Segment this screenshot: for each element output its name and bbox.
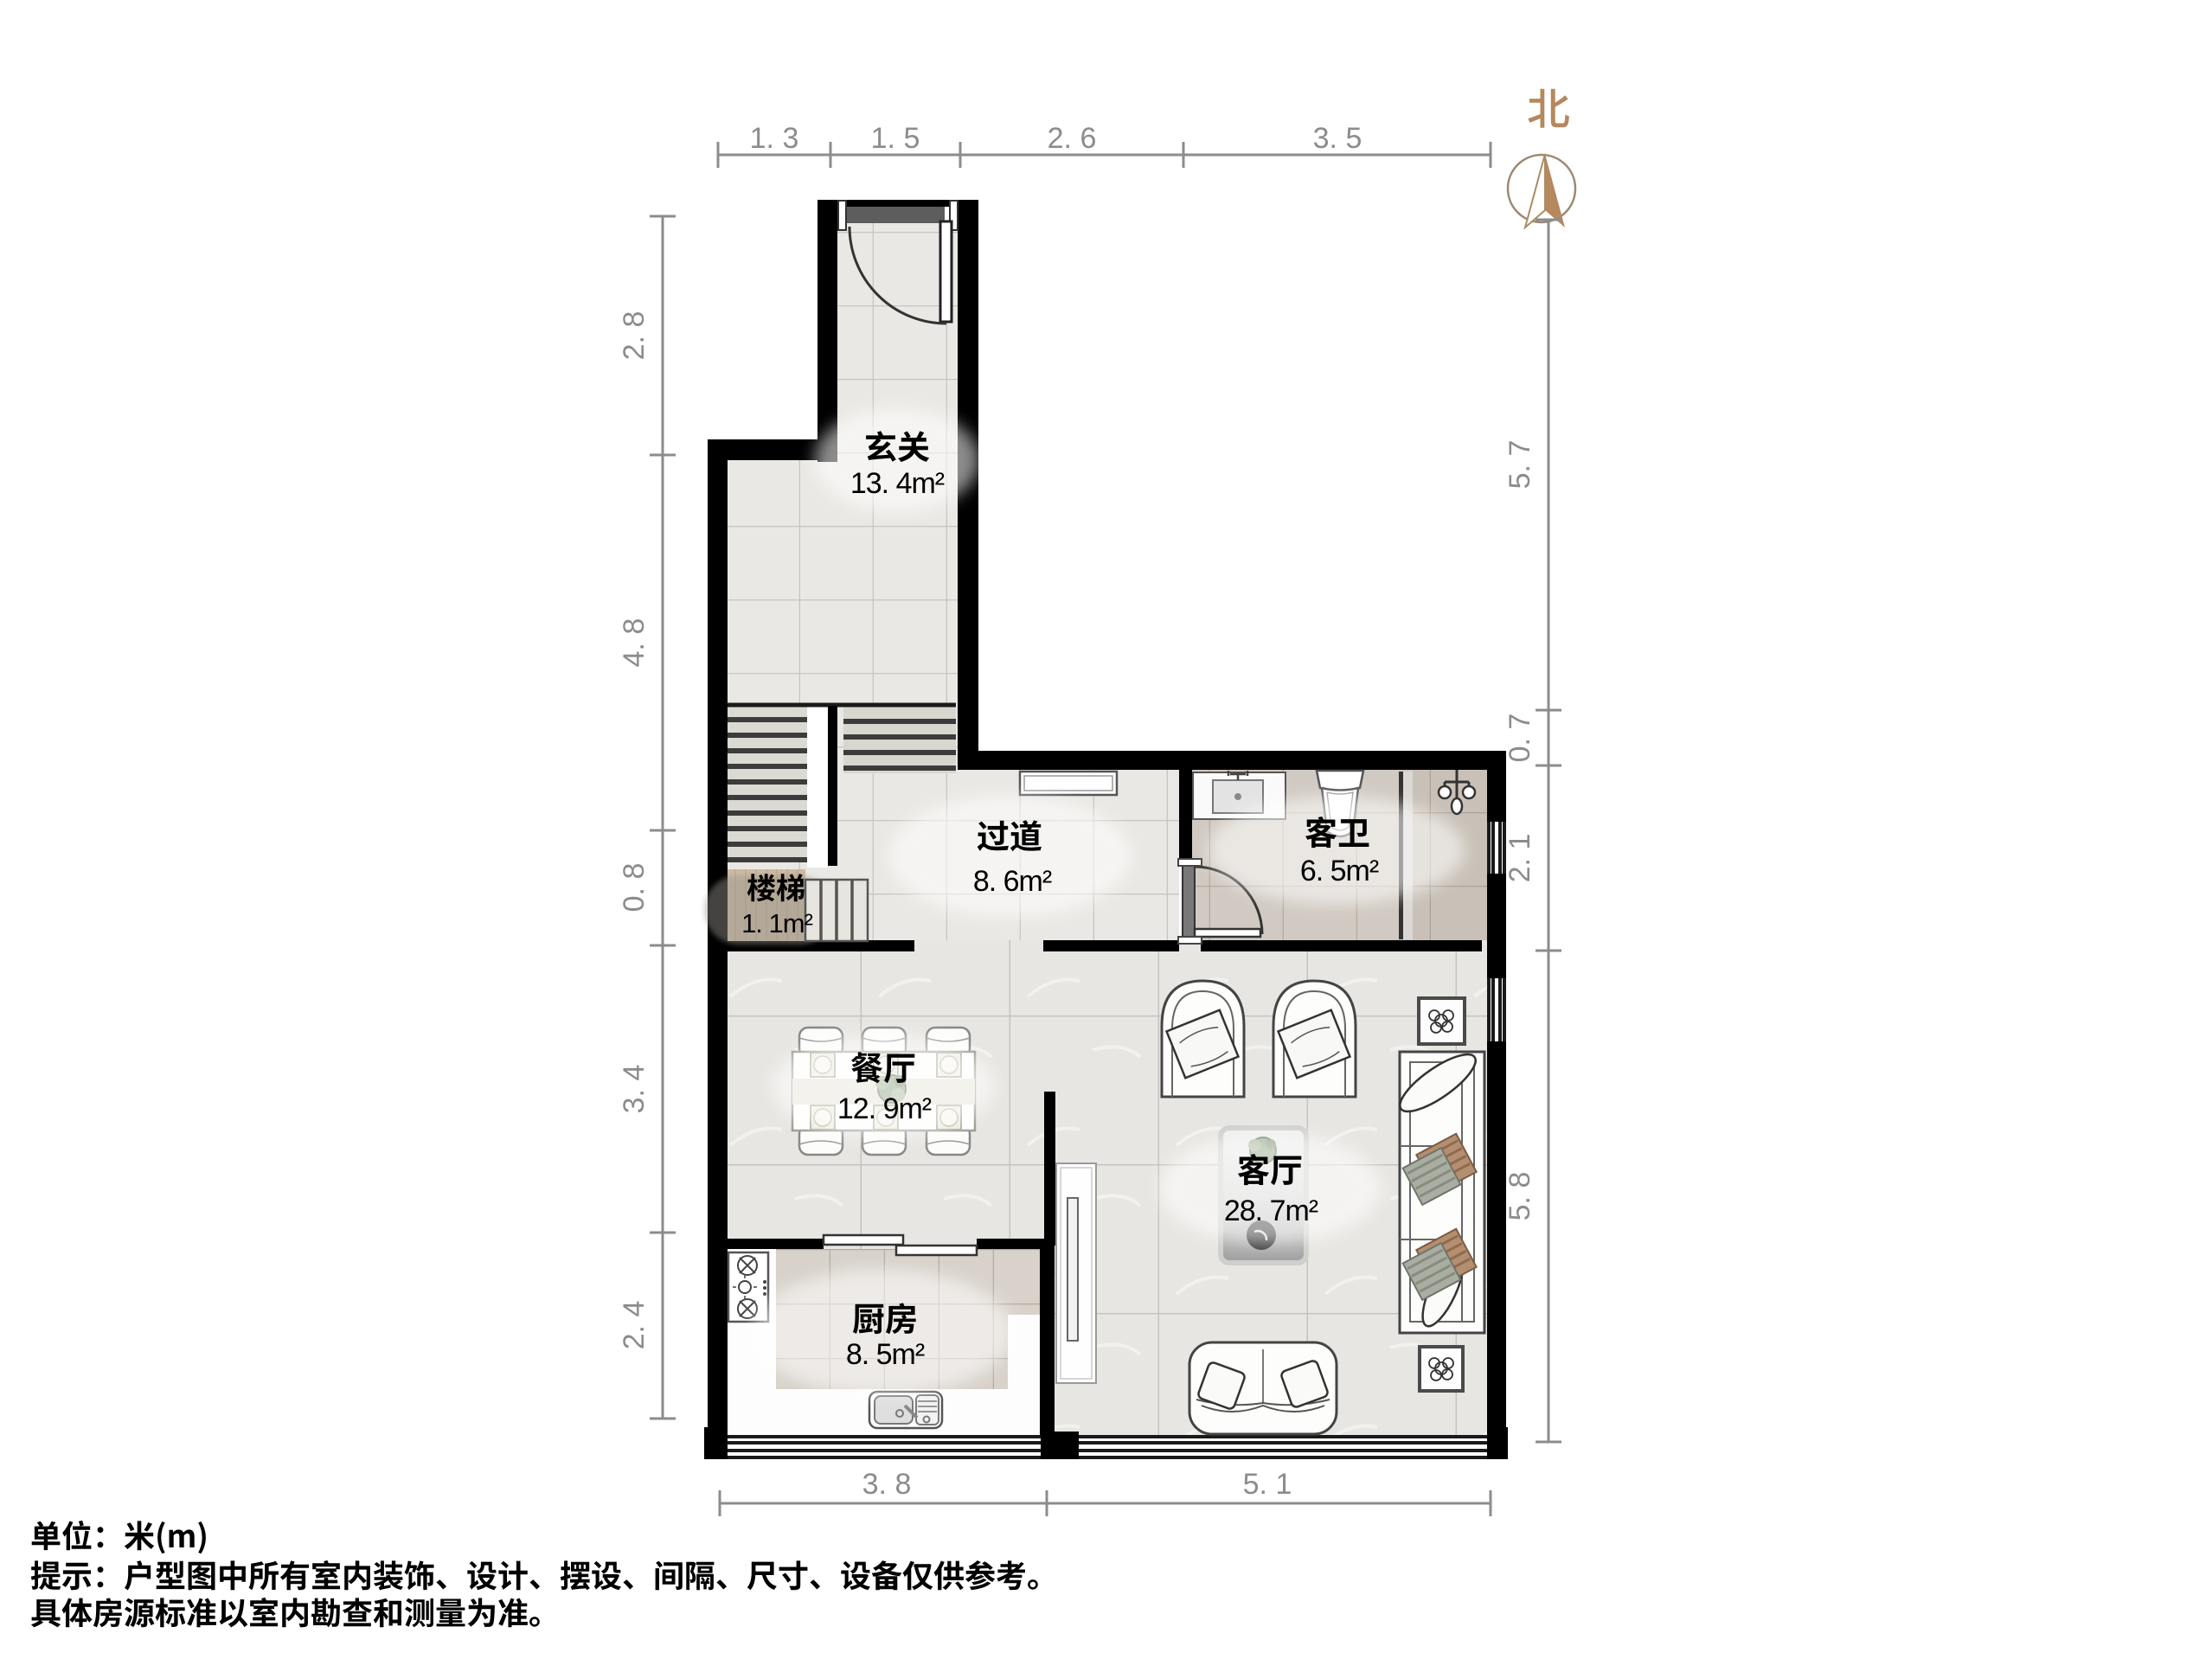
svg-text:6. 5m²: 6. 5m² — [1300, 855, 1379, 887]
svg-text:2. 8: 2. 8 — [618, 311, 651, 361]
svg-text:12. 9m²: 12. 9m² — [837, 1092, 932, 1125]
svg-text:5. 1: 5. 1 — [1243, 1468, 1292, 1501]
svg-text:5. 7: 5. 7 — [1504, 440, 1536, 490]
svg-text:3. 8: 3. 8 — [862, 1468, 912, 1501]
svg-text:3. 5: 3. 5 — [1313, 122, 1362, 155]
svg-text:5. 8: 5. 8 — [1504, 1172, 1536, 1221]
svg-text:13. 4m²: 13. 4m² — [850, 467, 945, 500]
svg-text:1. 3: 1. 3 — [750, 122, 799, 155]
svg-text:0. 8: 0. 8 — [618, 863, 651, 913]
svg-text:28. 7m²: 28. 7m² — [1224, 1195, 1318, 1227]
svg-text:1. 5: 1. 5 — [871, 122, 920, 155]
svg-text:8. 6m²: 8. 6m² — [973, 865, 1052, 898]
svg-text:4. 8: 4. 8 — [618, 618, 651, 668]
svg-text:8. 5m²: 8. 5m² — [846, 1338, 925, 1371]
svg-text:3. 4: 3. 4 — [618, 1065, 651, 1114]
svg-text:1. 1m²: 1. 1m² — [741, 908, 813, 938]
svg-text:2. 6: 2. 6 — [1048, 122, 1097, 155]
svg-text:2. 1: 2. 1 — [1504, 834, 1536, 883]
svg-text:0. 7: 0. 7 — [1504, 714, 1536, 763]
svg-text:2. 4: 2. 4 — [618, 1301, 651, 1350]
